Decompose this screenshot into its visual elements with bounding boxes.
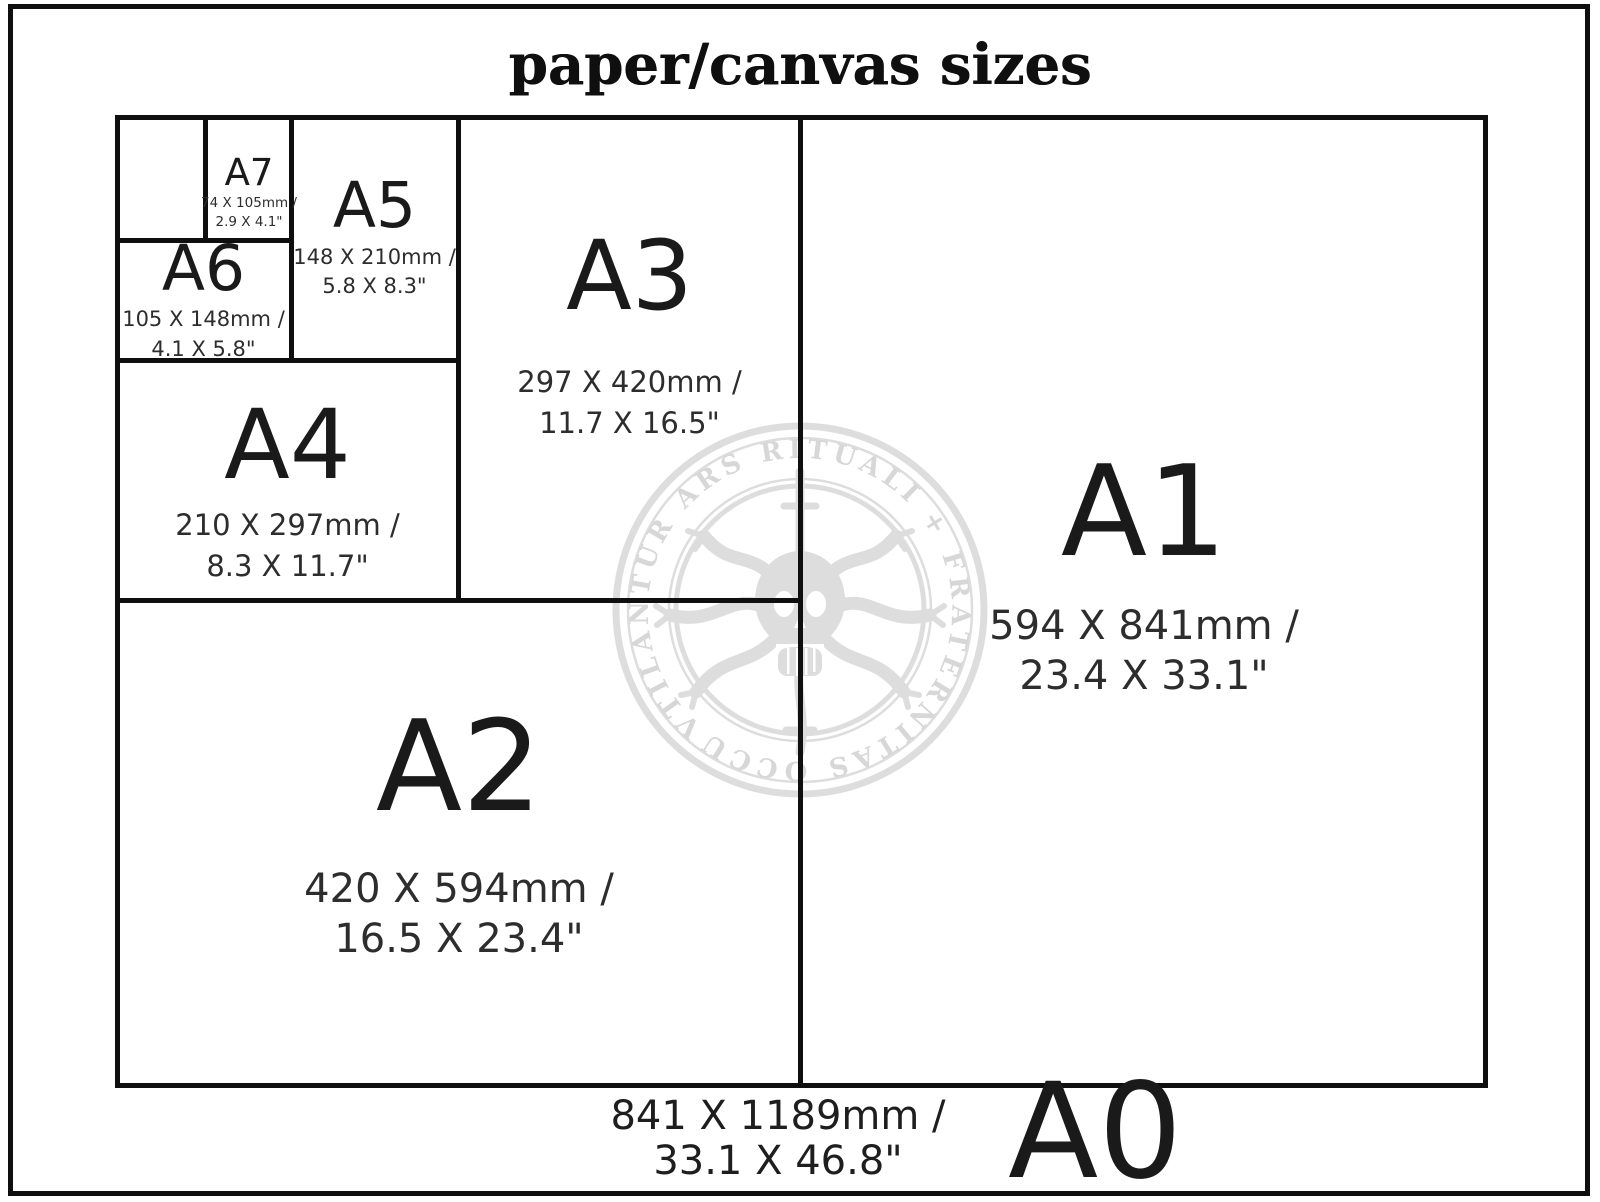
size-dims-a5: 148 X 210mm / 5.8 X 8.3" (293, 243, 456, 302)
size-dims-a3: 297 X 420mm / 11.7 X 16.5" (517, 362, 742, 443)
size-label-a2: A2 (376, 704, 542, 830)
size-dims-a0: 841 X 1189mm / 33.1 X 46.8" (478, 1094, 1078, 1184)
size-dims-mm: 594 X 841mm / (989, 601, 1299, 651)
size-dims-inch: 23.4 X 33.1" (989, 651, 1299, 701)
size-dims-a6: 105 X 148mm / 4.1 X 5.8" (122, 305, 285, 364)
size-label-a3: A3 (566, 228, 693, 324)
size-dims-inch: 5.8 X 8.3" (293, 272, 456, 301)
size-dims-mm: 210 X 297mm / (175, 505, 400, 546)
size-dims-mm: 148 X 210mm / (293, 243, 456, 272)
size-label-a4: A4 (224, 397, 351, 493)
size-dims-mm: 74 X 105mm / (201, 194, 297, 212)
paper-sizes-diagram: paper/canvas sizes VTILANTUR ARS RITUALI… (0, 0, 1600, 1202)
size-dims-a4: 210 X 297mm / 8.3 X 11.7" (175, 505, 400, 586)
size-label-a7: A7 (225, 154, 274, 191)
size-label-a0: A0 (1008, 1066, 1182, 1198)
size-label-a6: A6 (162, 237, 245, 300)
size-dims-inch: 4.1 X 5.8" (122, 335, 285, 364)
size-label-a1: A1 (1061, 449, 1227, 575)
size-dims-a1: 594 X 841mm / 23.4 X 33.1" (989, 601, 1299, 701)
size-dims-mm: 297 X 420mm / (517, 362, 742, 403)
cell-a1: A1 594 X 841mm / 23.4 X 33.1" (803, 117, 1485, 1088)
cell-a3: A3 297 X 420mm / 11.7 X 16.5" (461, 117, 798, 600)
size-dims-mm: 841 X 1189mm / (478, 1094, 1078, 1139)
size-dims-mm: 105 X 148mm / (122, 305, 285, 334)
size-label-a5: A5 (333, 174, 416, 237)
size-dims-inch: 16.5 X 23.4" (304, 914, 614, 964)
size-dims-a7: 74 X 105mm / 2.9 X 4.1" (201, 194, 297, 230)
cell-a6: A6 105 X 148mm / 4.1 X 5.8" (120, 243, 287, 358)
cell-a2: A2 420 X 594mm / 16.5 X 23.4" (120, 603, 798, 1088)
size-dims-inch: 2.9 X 4.1" (201, 213, 297, 231)
size-dims-mm: 420 X 594mm / (304, 864, 614, 914)
page-title: paper/canvas sizes (0, 32, 1600, 98)
cell-a7: A7 74 X 105mm / 2.9 X 4.1" (208, 117, 290, 238)
cell-a4: A4 210 X 297mm / 8.3 X 11.7" (120, 363, 455, 598)
size-dims-inch: 8.3 X 11.7" (175, 546, 400, 587)
size-dims-inch: 33.1 X 46.8" (478, 1139, 1078, 1184)
size-dims-a2: 420 X 594mm / 16.5 X 23.4" (304, 864, 614, 964)
cell-a5: A5 148 X 210mm / 5.8 X 8.3" (294, 117, 455, 358)
size-dims-inch: 11.7 X 16.5" (517, 403, 742, 444)
